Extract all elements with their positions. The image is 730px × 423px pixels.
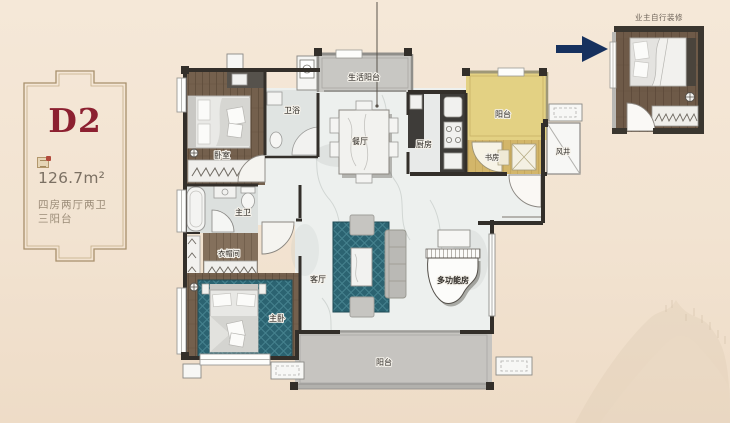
stove [444, 122, 462, 148]
arrow-right-icon [556, 36, 608, 62]
toilet [242, 193, 255, 209]
room-label-balcony-top: 阳台 [495, 109, 511, 119]
ac-platform-bottom-right [496, 357, 532, 375]
ac-platform-top [549, 104, 582, 121]
piano-keyboard [426, 249, 480, 258]
room-label-bedroom: 卧室 [214, 150, 230, 160]
laundry-shaft [297, 56, 317, 90]
sink [444, 97, 462, 117]
unit-name: D2 [23, 104, 127, 137]
ac-platform-bottom-left [271, 362, 304, 379]
room-label-service-balcony: 生活阳台 [348, 72, 380, 82]
room-label-cloakroom: 衣帽间 [218, 249, 240, 258]
room-balcony-top [466, 68, 547, 140]
room-kitchen [408, 92, 466, 174]
room-label-master-bath: 主卫 [235, 207, 251, 217]
wardrobe [652, 106, 698, 126]
callout-title: 业主自行装修 [635, 12, 683, 22]
unit-area: 126.7m² [38, 169, 105, 187]
master-suite-door [262, 222, 294, 254]
room-label-dining: 餐厅 [352, 137, 368, 146]
room-label-study: 书房 [485, 153, 500, 162]
room-label-multi-room: 多功能房 [437, 275, 469, 285]
room-label-balcony-bottom: 阳台 [376, 357, 392, 367]
callout-room: 业主自行装修 [610, 12, 704, 134]
coffee-table [351, 248, 372, 286]
room-label-master-bedroom: 主卧 [269, 313, 285, 323]
armchair [350, 215, 374, 235]
unit-spec-rooms: 四房两厅两卫 [38, 197, 107, 212]
room-balcony-bottom [295, 330, 492, 389]
room-label-kitchen: 厨房 [416, 139, 432, 149]
room-label-living: 客厅 [310, 274, 326, 284]
main-plan: 卧室 卫浴 生活阳台 餐厅 厨房 阳台 书房 风井 主卫 衣帽间 主卧 客厅 多… [177, 2, 582, 390]
room-label-wind-shaft: 风井 [556, 147, 571, 156]
room-study [466, 140, 545, 174]
unit-info-card: D2 126.7m² 四房两厅两卫 三阳台 [23, 68, 127, 264]
room-label-bath: 卫浴 [284, 105, 300, 115]
area-badge-icon [37, 157, 49, 168]
armchair [350, 297, 374, 317]
unit-spec-balconies: 三阳台 [38, 211, 73, 226]
mountain-watermark [575, 300, 730, 423]
room-service-balcony [318, 50, 412, 92]
room-bath [265, 90, 318, 157]
floor-plan-page: 卧室 卫浴 生活阳台 餐厅 厨房 阳台 书房 风井 主卫 衣帽间 主卧 客厅 多… [0, 0, 730, 423]
